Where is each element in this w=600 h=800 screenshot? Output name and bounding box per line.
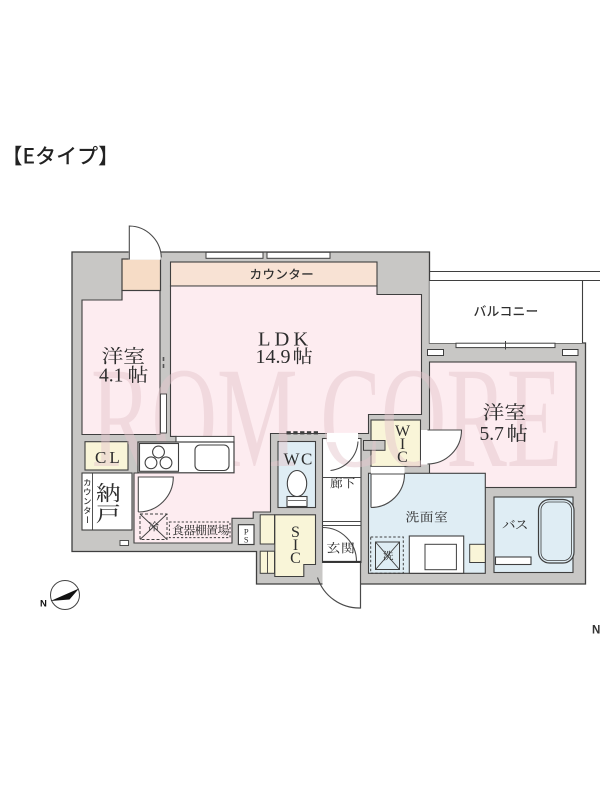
svg-text:CL: CL <box>95 448 123 467</box>
svg-text:5.7: 5.7 <box>480 424 505 445</box>
svg-text:C: C <box>290 550 301 567</box>
svg-text:N: N <box>592 625 600 637</box>
svg-text:4.1: 4.1 <box>99 366 123 387</box>
svg-text:C: C <box>397 449 408 466</box>
svg-text:N: N <box>40 599 47 610</box>
svg-text:S: S <box>244 535 249 545</box>
svg-text:14.9: 14.9 <box>256 346 291 368</box>
svg-text:WC: WC <box>284 450 314 469</box>
